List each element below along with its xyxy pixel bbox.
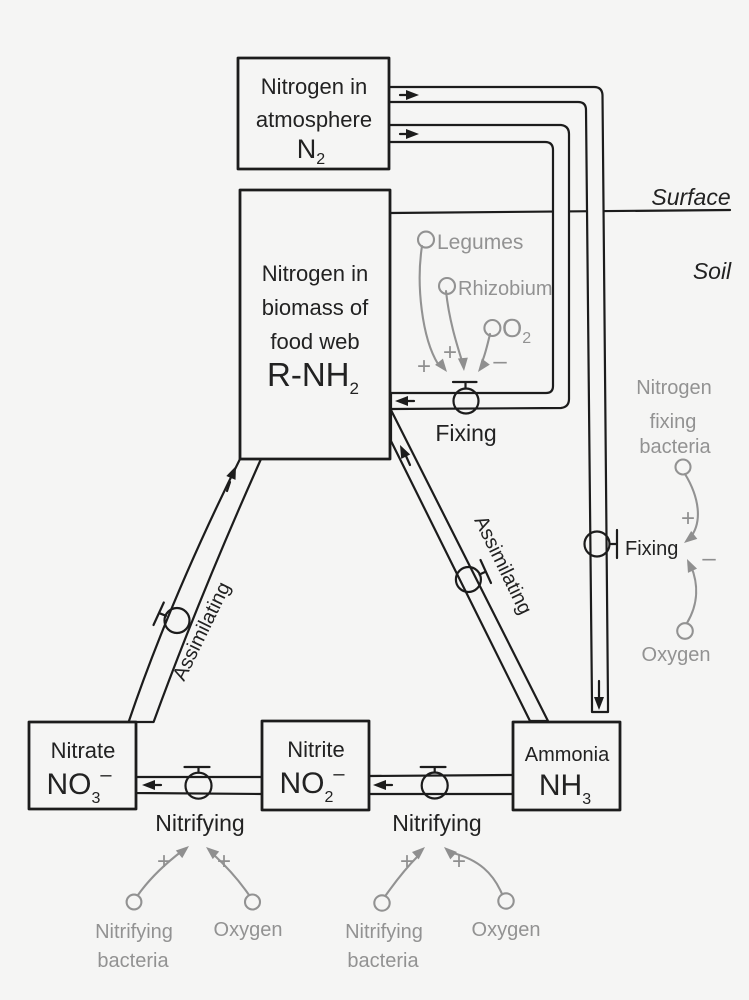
svg-text:Oxygen: Oxygen <box>214 919 283 941</box>
svg-text:biomass of: biomass of <box>262 295 369 320</box>
svg-text:bacteria: bacteria <box>639 436 711 458</box>
svg-text:Nitrogen in: Nitrogen in <box>262 261 368 286</box>
svg-text:Nitrate: Nitrate <box>51 738 116 763</box>
svg-text:Nitrifying: Nitrifying <box>392 810 481 836</box>
svg-text:Nitrogen: Nitrogen <box>636 377 712 399</box>
svg-text:+: + <box>681 505 695 532</box>
svg-text:Nitrifying: Nitrifying <box>345 921 423 943</box>
svg-text:bacteria: bacteria <box>97 950 169 972</box>
svg-text:fixing: fixing <box>650 411 697 433</box>
svg-text:Fixing: Fixing <box>435 420 496 446</box>
svg-text:Nitrogen in: Nitrogen in <box>261 74 367 99</box>
svg-text:Rhizobium: Rhizobium <box>458 278 552 300</box>
svg-text:Nitrite: Nitrite <box>287 737 344 762</box>
svg-text:+: + <box>217 848 231 875</box>
svg-text:+: + <box>443 339 457 366</box>
svg-text:Legumes: Legumes <box>437 231 523 254</box>
svg-text:Fixing: Fixing <box>625 538 678 560</box>
svg-text:–: – <box>493 348 507 375</box>
svg-text:bacteria: bacteria <box>347 950 419 972</box>
svg-text:+: + <box>417 353 431 380</box>
svg-text:Nitrifying: Nitrifying <box>95 921 173 943</box>
svg-text:Soil: Soil <box>693 258 732 284</box>
svg-text:Oxygen: Oxygen <box>642 644 711 666</box>
svg-text:–: – <box>702 545 716 572</box>
svg-text:+: + <box>157 848 171 875</box>
svg-text:+: + <box>452 848 466 875</box>
svg-text:Nitrifying: Nitrifying <box>155 810 244 836</box>
svg-text:R-NH2: R-NH2 <box>267 356 359 398</box>
svg-text:food web: food web <box>270 329 359 354</box>
svg-text:Oxygen: Oxygen <box>472 919 541 941</box>
svg-text:atmosphere: atmosphere <box>256 107 372 132</box>
svg-text:Ammonia: Ammonia <box>525 744 610 766</box>
svg-text:+: + <box>400 848 414 875</box>
svg-text:Surface: Surface <box>651 184 730 210</box>
